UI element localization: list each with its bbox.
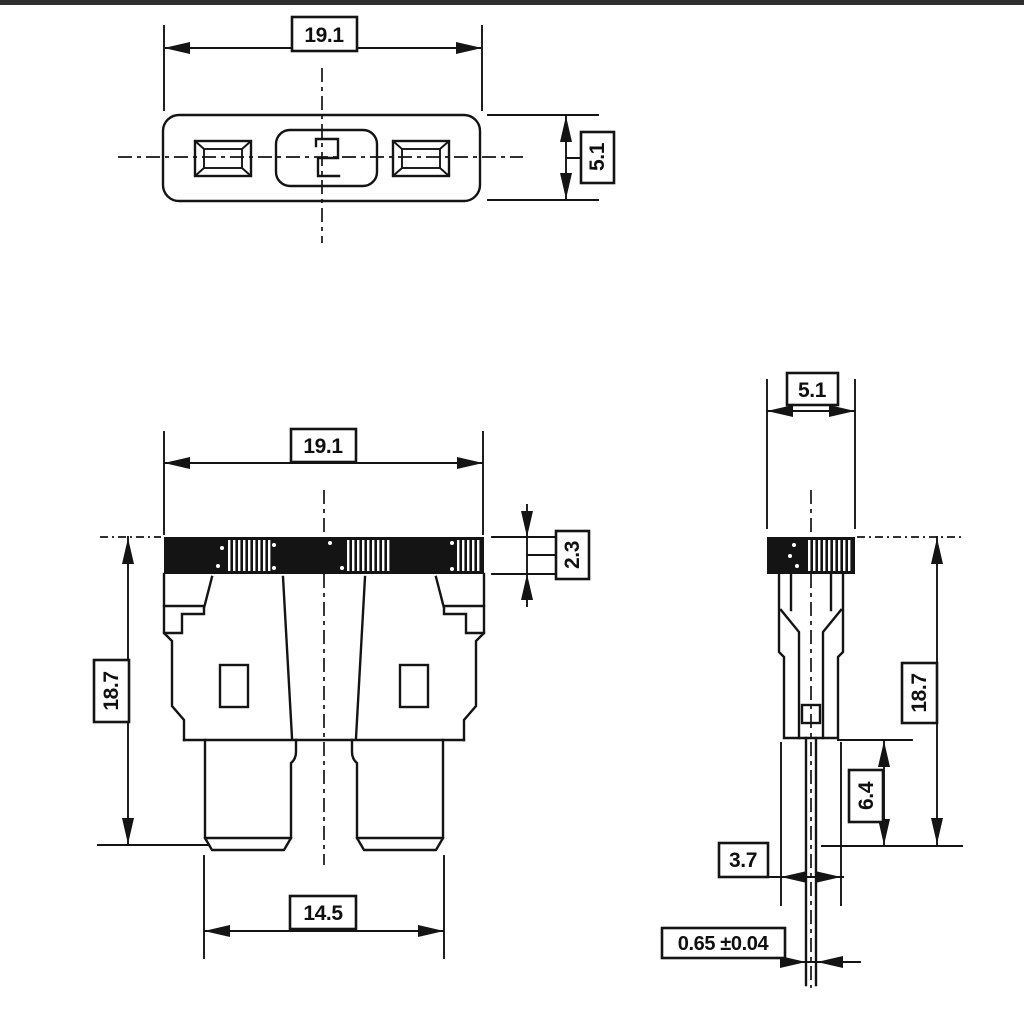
dim-side-depth: 5.1: [767, 373, 855, 528]
top-view: 19.1 5.1: [118, 17, 614, 243]
dim-front-height: 18.7: [94, 537, 208, 845]
terminal-slot-left: [195, 141, 251, 176]
fuse-housing-side: [779, 574, 843, 738]
dim-label-front-width: 19.1: [303, 435, 343, 458]
dim-label-side-height: 18.7: [908, 673, 931, 712]
drawing-canvas: 19.1 5.1: [0, 0, 1024, 1024]
fuse-element-glyph: [316, 139, 339, 176]
terminal-slot-right: [393, 141, 449, 176]
dim-side-foot-width: 3.7: [719, 743, 843, 905]
dim-side-terminal-thickness: 0.65 ±0.04: [662, 928, 860, 968]
fuse-technical-drawing: 19.1 5.1: [0, 0, 1024, 1024]
dim-label-side-terminal-length: 6.4: [855, 781, 878, 810]
latch-window-right: [400, 665, 428, 707]
dim-front-terminal-span: 14.5: [204, 856, 444, 958]
fuse-cap-front: [164, 537, 484, 574]
dim-label-front-terminal-span: 14.5: [303, 902, 343, 925]
dim-top-width: 19.1: [164, 17, 482, 110]
dim-label-side-terminal-thickness: 0.65 ±0.04: [678, 933, 770, 955]
dim-label-side-foot-width: 3.7: [729, 849, 757, 872]
dim-label-top-depth: 5.1: [586, 142, 609, 171]
side-view: 5.1 18.7 6.4 3.7 0.65 ±0.: [662, 373, 962, 988]
dim-label-front-height: 18.7: [100, 671, 123, 710]
dim-label-front-cap-height: 2.3: [561, 541, 584, 569]
latch-window-left: [220, 665, 248, 707]
dim-top-depth: 5.1: [488, 115, 614, 200]
dim-side-terminal-length: 6.4: [838, 740, 912, 846]
top-view-centerlines: [118, 68, 523, 243]
scan-artifact-bar: [0, 0, 1024, 5]
front-view: 19.1 2.3 18.7 14.5: [94, 429, 589, 958]
dim-label-side-depth: 5.1: [798, 379, 827, 402]
fuse-cap-side: [767, 537, 855, 574]
dim-label-top-width: 19.1: [304, 24, 344, 47]
dim-front-cap-height: 2.3: [492, 505, 589, 606]
